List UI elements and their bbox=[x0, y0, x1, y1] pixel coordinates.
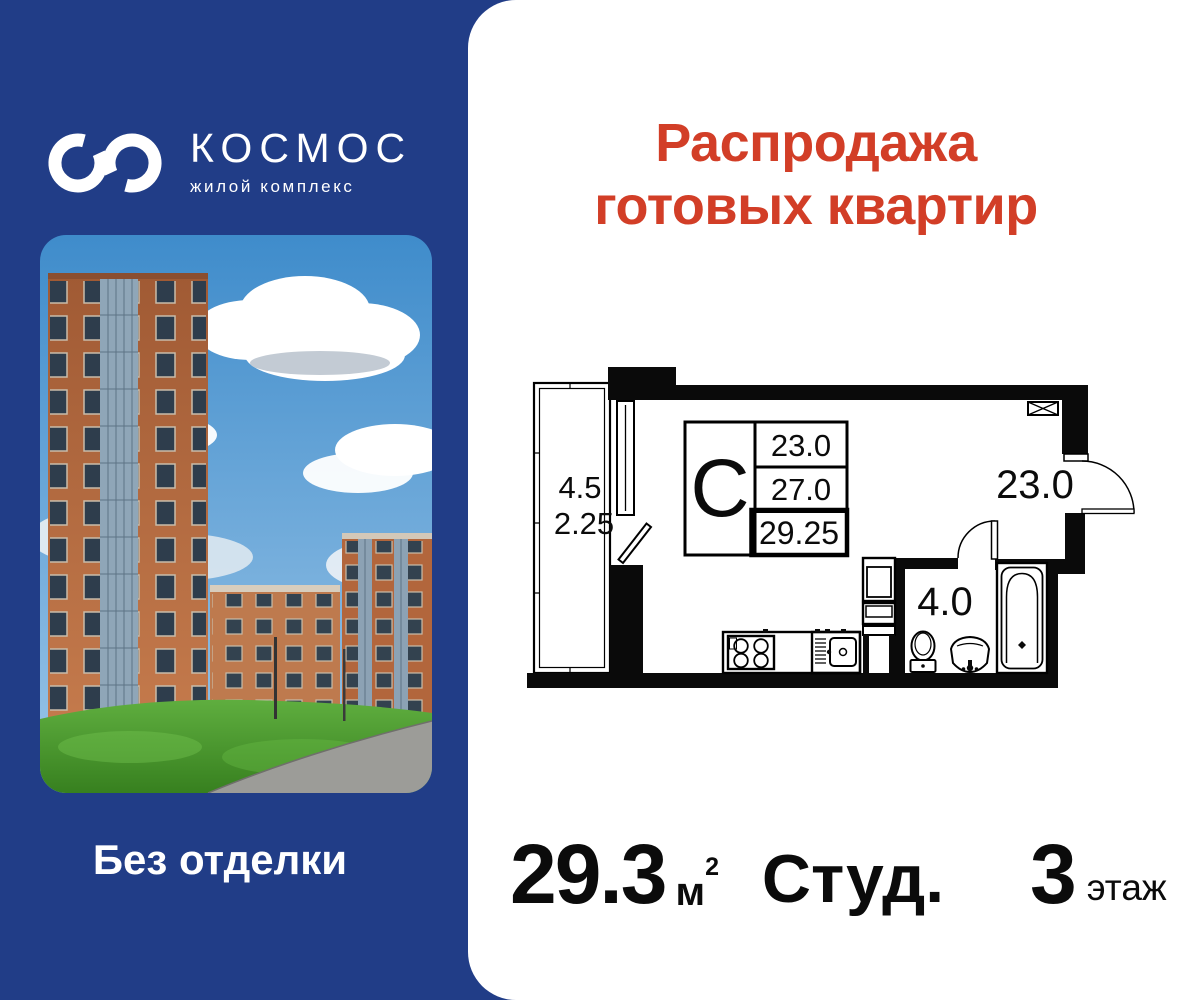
living-area-value: 23.0 bbox=[757, 423, 845, 467]
infinity-logo-icon bbox=[46, 130, 166, 196]
building-photo bbox=[40, 235, 432, 793]
balcony-area-reduced-label: 2.25 bbox=[532, 503, 636, 543]
total-area-value: 29.25 bbox=[751, 510, 847, 555]
left-tower bbox=[48, 273, 208, 723]
room-area-label: 23.0 bbox=[970, 457, 1100, 513]
summary-apartment-type: Студ. bbox=[748, 852, 958, 908]
promo-title-line1: Распродажа bbox=[468, 112, 1164, 175]
brand-name: КОСМОС bbox=[190, 128, 412, 169]
floor-plan: 4.5 2.25 С 23.0 27.0 29.25 23.0 4.0 bbox=[520, 355, 1140, 700]
area-without-balcony-value: 27.0 bbox=[757, 467, 845, 512]
promo-title: Распродажа готовых квартир bbox=[468, 112, 1200, 238]
balcony-area-label: 4.5 bbox=[532, 467, 628, 507]
brand-logo: КОСМОС жилой комплекс bbox=[46, 128, 412, 197]
summary-area: 29.3 м2 bbox=[510, 842, 719, 908]
vent-shaft bbox=[1028, 402, 1058, 415]
apartment-type-letter: С bbox=[685, 422, 755, 555]
building-photo-illustration bbox=[40, 235, 432, 793]
floor-word: этаж bbox=[1087, 869, 1167, 908]
street-light bbox=[274, 637, 277, 719]
bathtub bbox=[997, 563, 1047, 673]
washbasin bbox=[951, 637, 989, 672]
street-light bbox=[343, 649, 346, 721]
area-unit: м2 bbox=[676, 876, 720, 908]
area-value: 29.3 bbox=[510, 842, 666, 908]
summary-floor: 3 этаж bbox=[1030, 842, 1167, 908]
brand-tagline: жилой комплекс bbox=[190, 177, 412, 197]
right-building bbox=[342, 533, 432, 723]
brand-text: КОСМОС жилой комплекс bbox=[190, 128, 412, 197]
toilet bbox=[911, 632, 936, 673]
bathroom-area-label: 4.0 bbox=[905, 577, 985, 627]
apartment-type: Студ. bbox=[762, 852, 944, 908]
washer-column bbox=[863, 558, 895, 673]
finish-label: Без отделки bbox=[0, 836, 440, 884]
bathroom-door bbox=[958, 521, 998, 559]
promo-title-line2: готовых квартир bbox=[468, 175, 1164, 238]
floor-number: 3 bbox=[1030, 842, 1077, 908]
kitchen-counter bbox=[723, 629, 860, 673]
